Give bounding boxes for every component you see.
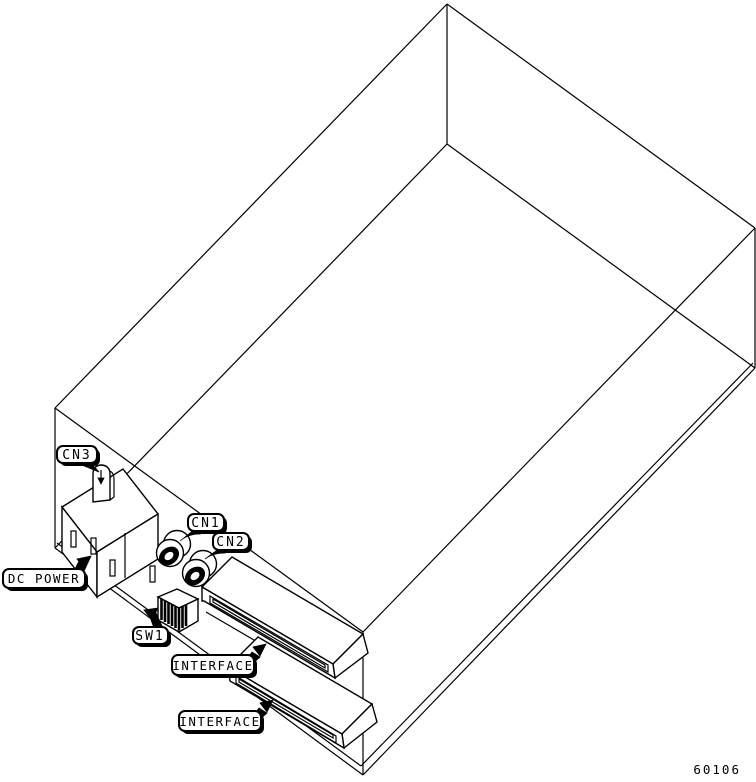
callout-label-interface-2: INTERFACE — [179, 714, 260, 729]
technical-diagram-page: CN3 CN1 CN2 DC POWER SW1 INTERFACE — [0, 0, 756, 782]
callout-cn3: CN3 — [57, 446, 100, 472]
callout-label-cn1: CN1 — [191, 516, 220, 531]
enclosure-wireframe — [55, 4, 755, 775]
device-isometric-diagram: CN3 CN1 CN2 DC POWER SW1 INTERFACE — [0, 0, 756, 782]
sw1-dip-switch — [158, 589, 198, 632]
callout-label-dc-power: DC POWER — [8, 571, 80, 586]
callout-label-cn3: CN3 — [62, 448, 91, 463]
enclosure-base-rim — [55, 363, 755, 775]
callout-label-sw1: SW1 — [135, 629, 164, 644]
callout-label-interface-1: INTERFACE — [172, 658, 253, 673]
callout-cn2: CN2 — [205, 533, 252, 559]
callout-interface-2: INTERFACE — [179, 700, 273, 734]
cn1-connector — [156, 531, 191, 569]
callout-label-cn2: CN2 — [216, 535, 245, 550]
figure-number: 60106 — [693, 762, 741, 777]
power-slot — [150, 566, 155, 582]
